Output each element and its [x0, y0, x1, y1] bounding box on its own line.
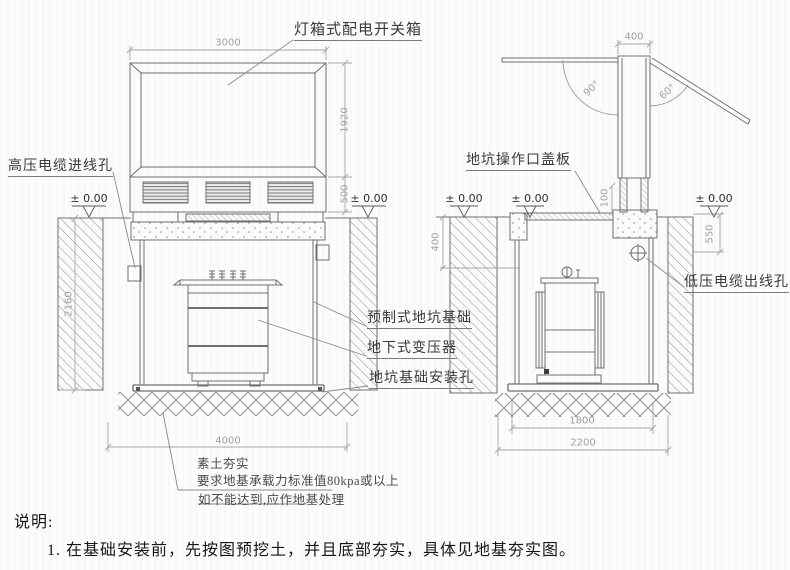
front-ground-hatch: [118, 392, 358, 416]
datum-front-right: ± 0.00: [350, 192, 387, 205]
side-elevation-linework: [436, 56, 750, 393]
label-precast-foundation: 预制式地坑基础: [367, 307, 472, 329]
dim-side-cover-offset: 100: [600, 188, 611, 207]
dim-side-pit-top-depth: 400: [431, 232, 442, 251]
front-dimension-lines: [60, 40, 386, 504]
label-lv-cable-hole: 低压电缆出线孔: [684, 271, 789, 293]
datum-front-left: ± 0.00: [70, 192, 107, 205]
label-pit-cover-plate: 地坑操作口盖板: [466, 149, 571, 171]
datum-side-mid: ± 0.00: [511, 192, 548, 205]
front-elevation-linework: [58, 63, 377, 391]
dim-front-pit-depth: 2160: [64, 291, 75, 316]
datum-side-right: ± 0.00: [695, 192, 732, 205]
ground-note-treatment: 如不能达到,应作地基处理: [198, 489, 345, 508]
dim-front-louver-height: 500: [340, 184, 351, 203]
dim-front-box-height: 1920: [340, 107, 351, 132]
label-foundation-mount-hole: 地坑基础安装孔: [369, 367, 474, 389]
ground-note-bearing: 要求地基承载力标准值80kpa或以上: [197, 470, 399, 489]
datum-side-left: ± 0.00: [445, 192, 482, 205]
side-ground-hatch: [495, 393, 671, 417]
dim-side-pit-inner-width: 1800: [569, 416, 594, 427]
notes-heading: 说明:: [14, 508, 53, 532]
dim-front-width: 3000: [215, 38, 240, 49]
dim-side-right-depth: 550: [705, 224, 716, 243]
label-underground-transformer: 地下式变压器: [367, 337, 457, 359]
label-hv-cable-hole: 高压电缆进线孔: [8, 155, 113, 177]
dim-side-pit-outer-width: 2200: [570, 438, 595, 449]
notes-item-1: 1. 在基础安装前，先按图预挖土，并且底部夯实，具体见地基夯实图。: [47, 536, 576, 560]
dim-side-top-width: 400: [624, 32, 643, 43]
label-switch-box: 灯箱式配电开关箱: [294, 18, 422, 41]
front-transformer-linework: [174, 271, 282, 386]
engineering-drawing-page: 灯箱式配电开关箱 高压电缆进线孔 地坑操作口盖板 低压电缆出线孔 预制式地坑基础…: [0, 0, 790, 570]
dim-front-pit-width: 4000: [215, 436, 240, 447]
side-transformer-linework: [536, 267, 604, 383]
